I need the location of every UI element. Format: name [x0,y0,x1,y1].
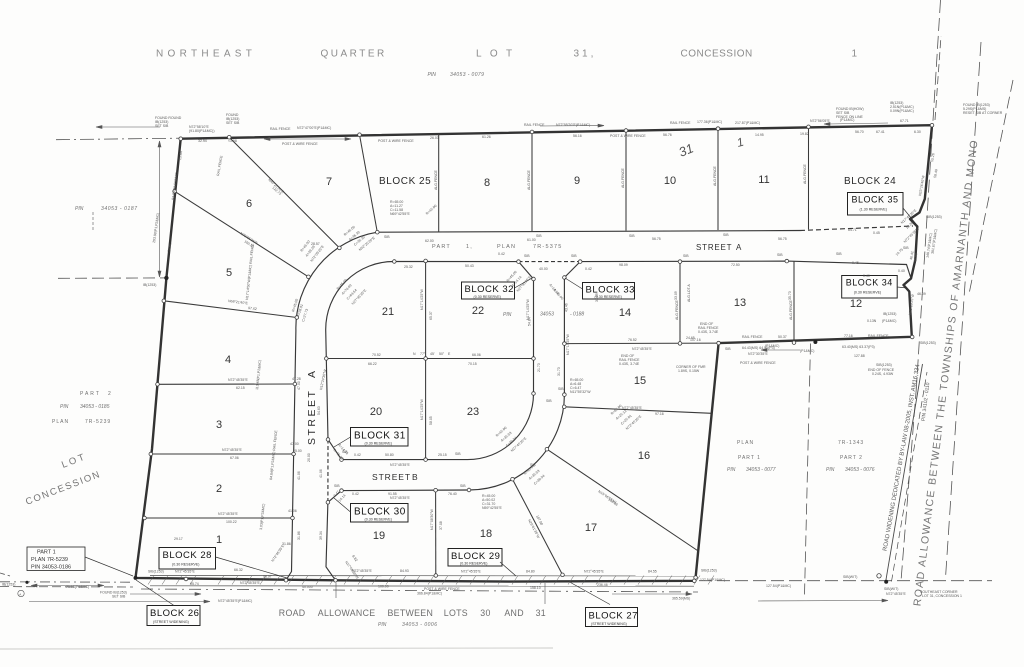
svg-text:16: 16 [638,450,650,462]
svg-text:34053 - 0076: 34053 - 0076 [845,467,875,473]
svg-text:21.73: 21.73 [537,363,541,372]
svg-text:SIB: SIB [460,484,466,488]
svg-text:12: 12 [850,298,862,310]
svg-text:LOT: LOT [476,49,520,60]
svg-text:31: 31 [536,608,546,618]
svg-text:LOTS: LOTS [444,608,468,618]
svg-text:6: 6 [246,198,252,210]
svg-text:- 0188: - 0188 [570,312,584,318]
svg-text:25.00: 25.00 [293,449,302,453]
svg-text:34053 - 0077: 34053 - 0077 [746,467,776,473]
svg-text:NORTHEAST: NORTHEAST [156,49,256,60]
svg-text:N69°42'55"E: N69°42'55"E [390,212,411,216]
svg-text:25.32: 25.32 [404,265,413,269]
svg-text:7R-1343: 7R-1343 [838,440,864,446]
svg-text:56.76: 56.76 [663,133,672,137]
svg-text:N59°42'55"E: N59°42'55"E [482,506,503,510]
svg-text:BETWEEN: BETWEEN [388,608,434,618]
svg-text:SIB(1253): SIB(1253) [920,341,936,345]
svg-text:0.13N: 0.13N [867,319,877,323]
svg-text:24.65: 24.65 [686,336,695,340]
svg-text:1,: 1, [466,244,473,250]
svg-text:34053: 34053 [540,312,554,318]
svg-text:67.06: 67.06 [230,456,239,460]
svg-text:34053 - 0187: 34053 - 0187 [101,206,138,212]
svg-text:QUARTER: QUARTER [321,49,387,60]
svg-text:PLAN: PLAN [52,419,69,425]
svg-text:9: 9 [574,175,580,187]
svg-text:ALG.FENCE: ALG.FENCE [789,299,793,320]
svg-text:SIB(WIT): SIB(WIT) [843,575,857,579]
svg-text:SIB: SIB [334,484,340,488]
svg-text:50.80: 50.80 [385,453,394,457]
svg-text:41.06: 41.06 [288,509,297,513]
svg-text:N72°45'35"E: N72°45'35"E [228,378,249,382]
svg-text:PLAN 7R-5239: PLAN 7R-5239 [31,557,68,563]
svg-text:LOT 31, CONCESSION 1: LOT 31, CONCESSION 1 [922,594,962,598]
svg-text:POST & WIRE FENCE: POST & WIRE FENCE [282,142,318,146]
svg-text:65.37: 65.37 [429,311,433,320]
svg-text:58.05: 58.05 [429,416,433,425]
svg-text:N72°45'35"E: N72°45'35"E [584,570,605,574]
svg-text:35.73: 35.73 [788,291,792,300]
svg-text:100.00: 100.00 [378,585,389,589]
svg-text:127.88: 127.88 [854,354,865,358]
svg-text:(1.30 RESERVE): (1.30 RESERVE) [860,208,888,212]
svg-text:<1.58: <1.58 [228,139,237,143]
svg-text:N72°45'35"E: N72°45'35"E [240,581,261,585]
svg-text:22: 22 [472,305,484,317]
svg-text:14: 14 [619,307,631,319]
svg-text:SIB(WIT): SIB(WIT) [884,587,898,591]
svg-text:33.09: 33.09 [595,293,599,302]
svg-text:N72°45'35"E: N72°45'35"E [222,448,243,452]
svg-text:84.55: 84.55 [648,570,657,574]
svg-text:N17°14'25"W: N17°14'25"W [420,288,424,310]
svg-text:N72°45'35"E: N72°45'35"E [390,463,411,467]
svg-text:ROAD: ROAD [279,608,306,618]
svg-text:POST & WIRE FENCE: POST & WIRE FENCE [740,361,776,365]
svg-text:25: 25 [419,176,431,187]
svg-text:SIB: SIB [524,254,530,258]
svg-text:N72°45'35"E: N72°45'35"E [175,570,196,574]
svg-text:56.75: 56.75 [778,237,787,241]
svg-text:POST & WIRE FENCE: POST & WIRE FENCE [610,134,646,138]
svg-text:SIB(1253): SIB(1253) [148,570,164,574]
svg-text:4: 4 [225,354,231,366]
svg-text:62.00: 62.00 [425,239,434,243]
svg-text:BLOCK 31: BLOCK 31 [354,431,406,442]
svg-text:31.86: 31.86 [297,531,301,540]
svg-text:66.22: 66.22 [368,362,377,366]
svg-text:(0.30 RESERVE): (0.30 RESERVE) [365,442,393,446]
svg-text:7: 7 [326,176,332,188]
svg-text:BLOCK 30: BLOCK 30 [354,507,406,518]
svg-text:SIB: SIB [384,235,390,239]
svg-text:RAIL FENCE: RAIL FENCE [742,335,763,339]
svg-text:158.10: 158.10 [530,586,541,590]
svg-text:0.43S, 3.74E: 0.43S, 3.74E [698,330,719,334]
svg-text:IB(1253): IB(1253) [143,283,156,287]
svg-text:19.82: 19.82 [800,132,809,136]
svg-text:76.52: 76.52 [628,338,637,342]
svg-text:95.74: 95.74 [190,582,199,586]
svg-text:(P1&MC): (P1&MC) [800,349,814,353]
svg-text:IB(1253): IB(1253) [883,312,896,316]
svg-text:0.09N(P1&MC): 0.09N(P1&MC) [890,109,914,113]
svg-text:RAIL FENCE: RAIL FENCE [270,127,291,131]
svg-text:11: 11 [758,174,769,186]
svg-text:39.34: 39.34 [319,531,323,540]
svg-text:31,: 31, [574,49,597,60]
svg-text:N72°45'35"E: N72°45'35"E [390,496,411,500]
svg-text:71.13(P1&MC): 71.13(P1&MC) [66,585,89,589]
svg-text:(P1&MC): (P1&MC) [882,319,896,323]
svg-text:40.000: 40.000 [302,585,313,589]
svg-text:SIB: SIB [629,234,635,238]
svg-text:(0.30 RESERVE): (0.30 RESERVE) [474,295,502,299]
svg-text:0.42: 0.42 [354,453,361,457]
svg-text:SIB: SIB [836,252,842,256]
svg-text:BLOCK 29: BLOCK 29 [451,551,500,562]
svg-text:POST & WIRE FENCE: POST & WIRE FENCE [378,139,414,143]
svg-text:177.36(P1&MC): 177.36(P1&MC) [697,120,722,124]
svg-text:PART: PART [432,244,451,250]
svg-text:SIB(1253): SIB(1253) [876,363,892,367]
svg-text:77°: 77° [420,352,426,356]
svg-text:STREET: STREET [372,472,411,482]
svg-text:PIN: PIN [60,404,69,410]
svg-text:0.40: 0.40 [898,269,905,273]
svg-text:365.59(MS): 365.59(MS) [672,597,690,601]
svg-text:5: 5 [226,267,232,279]
svg-text:45': 45' [430,352,435,356]
svg-text:72.50: 72.50 [731,263,740,267]
svg-text:SIB(1253): SIB(1253) [926,215,942,219]
svg-text:54.84: 54.84 [528,317,532,326]
svg-text:1: 1 [216,534,222,546]
svg-text:0.40: 0.40 [863,274,870,278]
svg-text:ALG.LOT.A: ALG.LOT.A [687,284,691,302]
svg-text:PLAN: PLAN [737,440,754,446]
svg-text:43.46: 43.46 [565,303,569,312]
svg-text:6.30: 6.30 [914,130,921,134]
svg-text:41.06: 41.06 [319,469,323,478]
svg-text:14.95: 14.95 [755,133,764,137]
svg-text:IB(1253): IB(1253) [2,583,15,587]
svg-text:23: 23 [467,406,479,418]
svg-text:N72°47'00"E(P1&MC): N72°47'00"E(P1&MC) [297,126,331,130]
svg-text:98.09: 98.09 [619,263,628,267]
svg-text:A: A [306,370,318,378]
svg-text:BLOCK: BLOCK [379,176,416,187]
svg-text:40.00: 40.00 [539,267,548,271]
svg-text:33.09: 33.09 [674,291,678,300]
svg-text:67.71: 67.71 [900,119,909,123]
svg-text:POST & WIRE FENCE: POST & WIRE FENCE [424,587,460,591]
svg-text:ALLOWANCE: ALLOWANCE [318,608,376,618]
svg-text:50.43: 50.43 [465,264,474,268]
svg-text:25.15: 25.15 [438,453,447,457]
svg-text:B: B [412,472,419,482]
svg-text:46.09: 46.09 [917,292,926,296]
svg-text:98.97: 98.97 [263,575,272,579]
svg-text:70.52: 70.52 [372,353,381,357]
svg-text:(0.30 RESERVE): (0.30 RESERVE) [172,563,200,567]
svg-text:67.41: 67.41 [876,130,885,134]
svg-text:CONCESSION: CONCESSION [681,49,753,60]
svg-text:BLOCK 26: BLOCK 26 [150,608,199,619]
svg-text:N17°08'30"W: N17°08'30"W [430,508,434,530]
svg-text:26.03: 26.03 [430,136,439,140]
svg-text:50": 50" [439,352,445,356]
svg-text:34053 - 0006: 34053 - 0006 [402,622,437,628]
svg-text:76.40: 76.40 [448,492,457,496]
svg-text:7R-5239: 7R-5239 [85,419,111,425]
svg-text:ALG.FENCE: ALG.FENCE [675,299,679,320]
svg-text:BLOCK 27: BLOCK 27 [589,611,638,622]
svg-text:41.06: 41.06 [297,471,301,480]
svg-text:N72°30'35"E: N72°30'35"E [748,352,769,356]
svg-text:20.00: 20.00 [307,453,311,462]
svg-text:61.26: 61.26 [482,135,491,139]
svg-text:(P1&MC): (P1&MC) [765,344,779,348]
svg-text:30: 30 [480,608,490,618]
svg-text:366.84(P1&MC): 366.84(P1&MC) [417,592,442,596]
svg-text:BLOCK 35: BLOCK 35 [852,195,899,205]
svg-text:PART: PART [80,391,101,397]
svg-text:97.16: 97.16 [655,412,664,416]
svg-text:56.75: 56.75 [652,237,661,241]
svg-text:1: 1 [852,49,862,60]
svg-text:84.80: 84.80 [526,570,535,574]
svg-text:RAIL FENCE: RAIL FENCE [670,121,691,125]
svg-text:0.42: 0.42 [585,267,592,271]
svg-text:RESET SIB AT CORNER: RESET SIB AT CORNER [963,111,1003,115]
svg-text:PLAN: PLAN [497,244,516,250]
svg-text:SET SIB: SET SIB [226,121,240,125]
svg-text:62.15: 62.15 [236,386,245,390]
svg-text:127.54(P1&MC): 127.54(P1&MC) [700,578,725,582]
svg-text:18: 18 [480,528,492,540]
svg-text:13: 13 [734,297,746,309]
svg-text:ALG.FENCE: ALG.FENCE [713,165,717,186]
svg-text:47.00: 47.00 [290,442,299,446]
svg-text:(0.30 RESERVE): (0.30 RESERVE) [460,562,488,566]
svg-text:SIB(1253): SIB(1253) [701,569,717,573]
svg-text:47.28: 47.28 [292,377,301,381]
svg-text:SIB: SIB [546,399,552,403]
svg-text:29.17: 29.17 [174,537,183,541]
svg-text:N17°14'25"W: N17°14'25"W [526,298,530,320]
svg-text:N72°56'05"E: N72°56'05"E [810,119,831,123]
svg-text:ALG.FENCE: ALG.FENCE [621,167,625,188]
svg-text:15: 15 [634,375,646,387]
svg-text:N72°55'20"E(P1&MC): N72°55'20"E(P1&MC) [556,123,590,127]
svg-text:54.63: 54.63 [317,406,321,415]
svg-text:SIB: SIB [558,387,564,391]
svg-text:50.37: 50.37 [778,335,787,339]
svg-text:AND: AND [504,608,523,618]
svg-text:SIB: SIB [723,233,729,237]
svg-text:(0.30 RESERVE): (0.30 RESERVE) [854,291,882,295]
svg-text:0.45: 0.45 [852,261,859,265]
svg-text:PIN: PIN [503,312,512,318]
svg-text:66.06: 66.06 [472,353,481,357]
svg-text:32.94: 32.94 [198,139,207,143]
svg-text:34053 - 0079: 34053 - 0079 [450,72,484,78]
svg-text:ALG.FENCE: ALG.FENCE [527,169,531,190]
svg-text:PIN 34053-0186: PIN 34053-0186 [31,565,71,571]
svg-text:STREET: STREET [306,389,318,445]
svg-text:0.42: 0.42 [498,252,505,256]
svg-text:34053 - 0185: 34053 - 0185 [80,404,110,410]
svg-text:PIN: PIN [826,467,835,473]
svg-text:SIB: SIB [683,254,689,258]
svg-text:PIN: PIN [75,206,84,212]
svg-text:24: 24 [884,176,896,187]
svg-text:SIB: SIB [903,246,909,250]
svg-text:(91.80(P1&MC)): (91.80(P1&MC)) [189,129,214,133]
svg-text:PART 2: PART 2 [840,455,863,461]
svg-text:0.45: 0.45 [873,231,880,235]
svg-text:(STREET WIDENING): (STREET WIDENING) [591,622,627,626]
svg-text:0.42: 0.42 [352,492,359,496]
svg-text:ALG.FENCE: ALG.FENCE [803,163,807,184]
svg-text:1.89S, 0.15W: 1.89S, 0.15W [678,369,700,373]
svg-text:63.40(MS) 63.37(P3): 63.40(MS) 63.37(P3) [842,345,875,349]
svg-text:BLOCK 33: BLOCK 33 [586,285,635,296]
svg-text:BLOCK 34: BLOCK 34 [846,278,893,288]
svg-text:SET SIB: SET SIB [112,595,126,599]
svg-text:77.16: 77.16 [844,334,853,338]
svg-text:PIN: PIN [428,72,437,78]
svg-text:SIB: SIB [725,347,731,351]
svg-text:19: 19 [373,530,385,542]
svg-text:37.08: 37.08 [439,521,443,530]
svg-text:N11°55'32"W: N11°55'32"W [570,390,591,394]
svg-text:21: 21 [382,306,394,318]
svg-text:10: 10 [664,175,676,187]
svg-text:N17°14'25"W: N17°14'25"W [420,398,424,420]
svg-text:N72°45'35"E: N72°45'35"E [218,512,239,516]
svg-text:2: 2 [108,391,111,397]
svg-text:PART 1: PART 1 [37,550,56,556]
svg-text:70.15: 70.15 [468,362,477,366]
svg-text:47.00: 47.00 [297,381,301,390]
svg-text:8: 8 [484,177,490,189]
svg-text:BLOCK 28: BLOCK 28 [163,550,212,561]
svg-text:56.70: 56.70 [855,130,864,134]
svg-text:SET SIB: SET SIB [155,124,169,128]
svg-text:31.73: 31.73 [557,367,561,376]
svg-text:PIN: PIN [378,622,387,628]
svg-text:7R-5375: 7R-5375 [533,244,563,250]
svg-text:66.32: 66.32 [234,568,243,572]
svg-text:0.24S, 4.93W: 0.24S, 4.93W [872,372,894,376]
svg-text:RAIL FENCE: RAIL FENCE [524,123,545,127]
svg-text:SIB: SIB [536,234,542,238]
svg-text:FENCE ON LINE: FENCE ON LINE [836,115,864,119]
svg-text:84.93: 84.93 [400,569,409,573]
svg-text:N72°45'35"E(P1&MC): N72°45'35"E(P1&MC) [218,599,252,603]
svg-text:17: 17 [585,522,597,534]
svg-text:3: 3 [216,419,222,431]
svg-text:N72°45'35"E: N72°45'35"E [632,347,653,351]
svg-text:0.43S, 3.74E: 0.43S, 3.74E [619,362,640,366]
svg-text:100.22: 100.22 [226,520,237,524]
svg-text:64.71: 64.71 [848,228,857,232]
svg-text:N72°45'35"E: N72°45'35"E [461,570,482,574]
svg-text:PART 1: PART 1 [738,455,761,461]
svg-text:20: 20 [370,406,382,418]
svg-text:SIB: SIB [777,253,783,257]
svg-text:N72°45'35"E: N72°45'35"E [886,592,907,596]
svg-text:BLOCK: BLOCK [844,176,881,187]
svg-text:236.46: 236.46 [597,583,608,587]
svg-text:61.00: 61.00 [527,238,536,242]
svg-text:217.87(P1&MC): 217.87(P1&MC) [735,121,760,125]
svg-text:BLOCK 32: BLOCK 32 [465,284,514,295]
svg-text:127.54(P1&MC): 127.54(P1&MC) [766,584,791,588]
svg-text:SIB: SIB [455,452,461,456]
svg-text:SIB: SIB [571,254,577,258]
svg-text:N17°14'25"W: N17°14'25"W [566,333,570,355]
svg-text:STREET: STREET [696,243,732,252]
svg-text:(STREET WIDENING): (STREET WIDENING) [153,620,189,624]
svg-text:A: A [736,243,742,252]
svg-text:ALG.FENCE: ALG.FENCE [434,169,438,190]
svg-text:PIN: PIN [727,467,736,473]
svg-text:56.16: 56.16 [573,134,582,138]
svg-text:2: 2 [216,483,222,495]
svg-text:(0.30 RESERVE): (0.30 RESERVE) [365,518,393,522]
svg-text:RAIL FENCE: RAIL FENCE [868,334,889,338]
